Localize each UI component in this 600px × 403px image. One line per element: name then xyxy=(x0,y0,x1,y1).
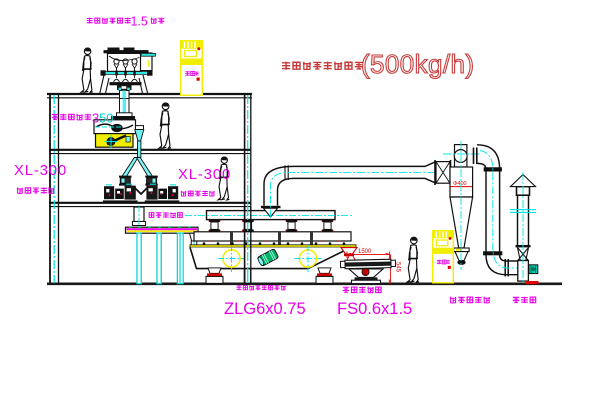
svg-text:(500kg/h): (500kg/h) xyxy=(361,49,474,79)
svg-text:1.5: 1.5 xyxy=(131,15,148,29)
svg-text:XL-300: XL-300 xyxy=(178,167,231,183)
svg-text:ZLG6x0.75: ZLG6x0.75 xyxy=(224,300,306,318)
svg-text:FS0.6x1.5: FS0.6x1.5 xyxy=(337,300,412,318)
svg-text:50: 50 xyxy=(99,111,113,126)
svg-text:Φ400: Φ400 xyxy=(453,181,467,187)
svg-text:XL-300: XL-300 xyxy=(14,163,67,179)
svg-text:1500: 1500 xyxy=(358,249,372,255)
